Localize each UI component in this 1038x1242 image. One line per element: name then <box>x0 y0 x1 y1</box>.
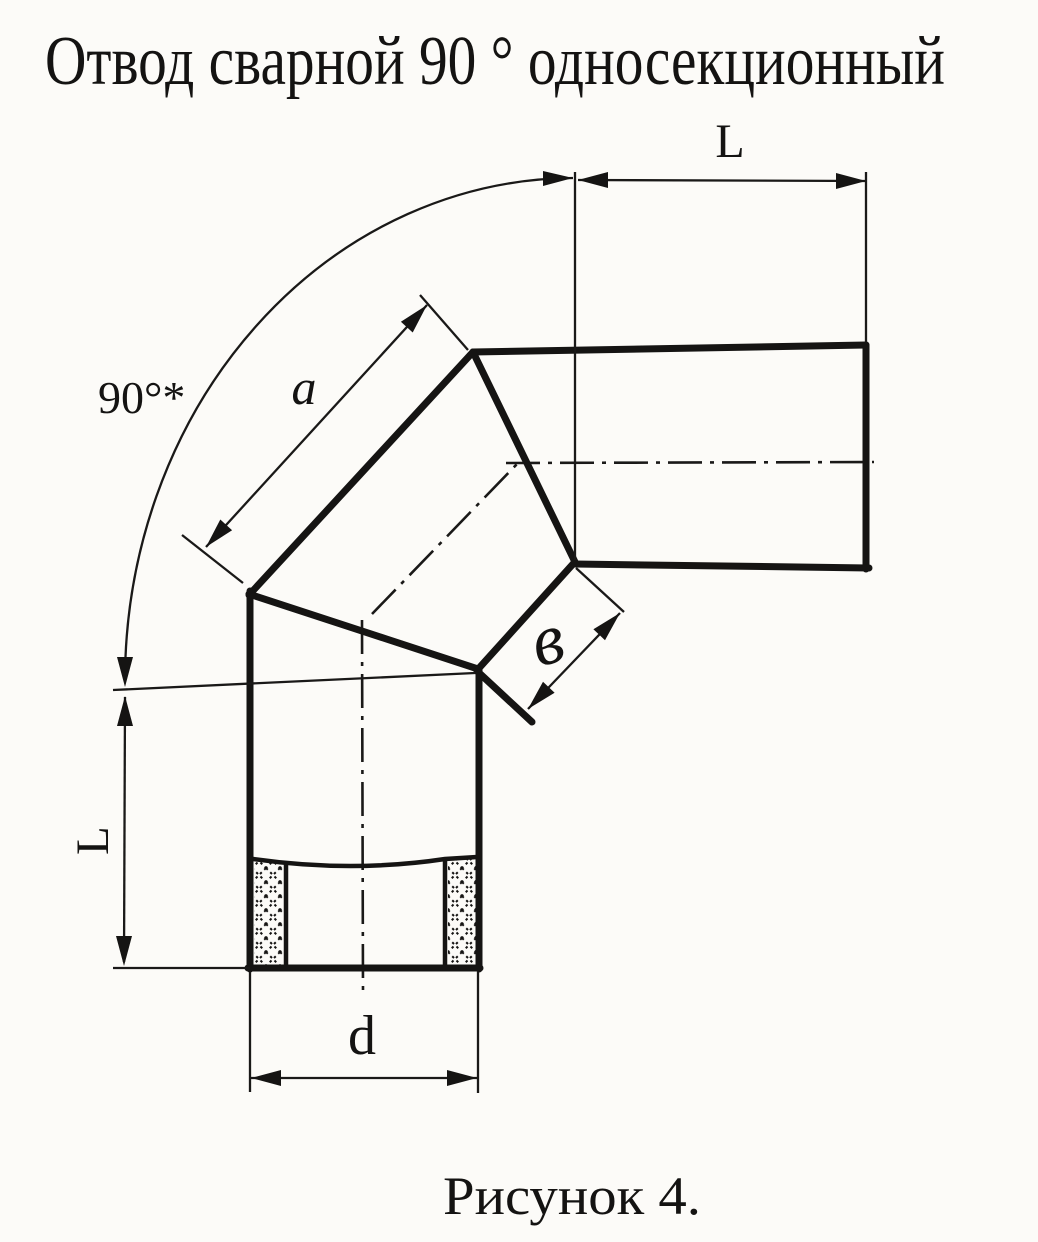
diameter-label: d <box>348 1005 376 1067</box>
lower-weld-seam <box>249 594 478 669</box>
end-width-label: в <box>522 597 572 682</box>
socket-hatch-right <box>448 859 477 964</box>
figure-caption: Рисунок 4. <box>443 1166 701 1226</box>
segment-centerline <box>372 464 517 614</box>
left-length-label: L <box>67 826 119 855</box>
segment-length-ext-top <box>420 295 468 350</box>
socket-hatch-left <box>254 861 283 965</box>
segment-corner-edge <box>477 671 532 722</box>
centerlines <box>362 462 874 991</box>
top-length-label: L <box>715 115 744 168</box>
end-width-ext-line <box>576 568 624 612</box>
segment-length-label: a <box>292 359 317 415</box>
left-length-ext-top <box>113 673 475 690</box>
socket-detail <box>253 857 477 966</box>
segment-outer-edge <box>249 352 473 595</box>
angle-dimension: 90°* <box>98 171 573 687</box>
scanned-drawing-page: Отвод сварной 90 ° односекционный <box>0 0 1038 1242</box>
left-length-top-arrowhead <box>117 696 133 726</box>
angle-label: 90°* <box>98 372 185 423</box>
angle-arc-top-arrowhead <box>543 171 573 186</box>
top-length-left-arrowhead <box>578 172 608 188</box>
top-length-right-arrowhead <box>836 173 866 189</box>
segment-length-dimension: a <box>182 295 468 583</box>
drawing-title: Отвод сварной 90 ° односекционный <box>45 23 945 100</box>
bottom-pipe-centerline <box>362 620 363 991</box>
diameter-left-arrowhead <box>251 1070 281 1086</box>
upper-weld-seam <box>473 352 575 562</box>
left-length-bottom-arrowhead <box>116 936 132 966</box>
top-pipe-centerline <box>506 462 874 463</box>
diameter-right-arrowhead <box>447 1070 477 1086</box>
segment-length-dim-line <box>206 305 427 547</box>
top-pipe-bottom-edge <box>575 564 869 568</box>
top-pipe-top-edge <box>473 345 866 352</box>
top-length-dimension: L <box>575 115 866 560</box>
angle-arc <box>125 178 573 681</box>
diameter-dimension: d <box>250 972 478 1093</box>
top-length-dim-line <box>578 180 866 181</box>
end-width-dimension: в <box>522 568 624 709</box>
left-length-dim-line <box>124 697 125 962</box>
elbow-drawing: Отвод сварной 90 ° односекционный <box>0 0 1038 1242</box>
angle-arc-bottom-arrowhead <box>117 657 133 687</box>
